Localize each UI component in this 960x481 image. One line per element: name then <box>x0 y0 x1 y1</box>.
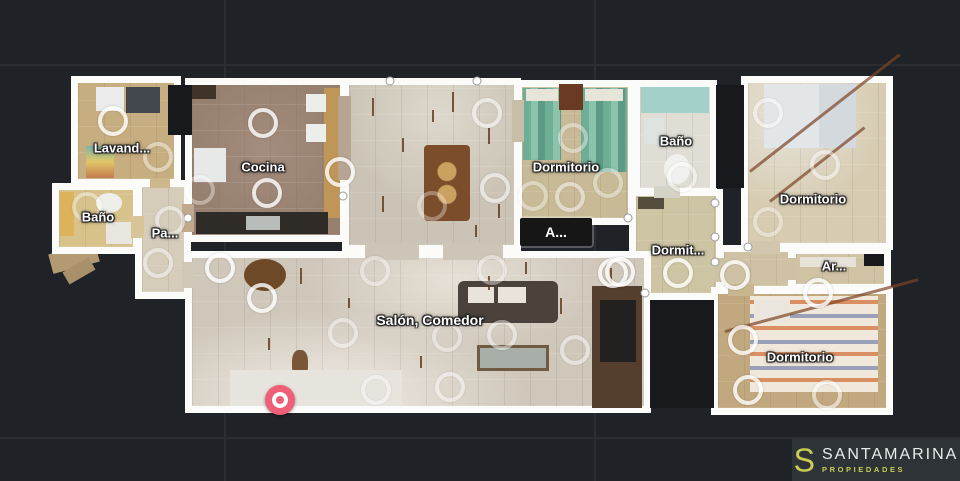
wall-node-dot <box>641 289 650 298</box>
headboard <box>559 84 583 110</box>
kitchen-stool <box>306 124 326 142</box>
scan-artifact-dash <box>348 298 350 308</box>
room-label-bano-izquierda: Baño <box>82 210 115 225</box>
grid-line-vertical <box>594 0 596 481</box>
viewpoint-ring[interactable] <box>667 162 697 192</box>
towel-rack <box>60 192 74 236</box>
brand-tagline: PROPIEDADES <box>822 465 958 474</box>
current-position-marker[interactable] <box>265 385 295 415</box>
room-label-dormitorio-der-inf: Dormitorio <box>767 350 833 365</box>
viewpoint-ring[interactable] <box>487 320 517 350</box>
bath-vanity <box>106 222 132 244</box>
viewpoint-ring[interactable] <box>728 325 758 355</box>
scan-artifact-dash <box>372 98 374 116</box>
room-label-bano-superior: Baño <box>660 134 693 149</box>
brand-logo-icon: S <box>794 444 815 476</box>
pillow <box>468 287 494 303</box>
viewpoint-ring[interactable] <box>143 248 173 278</box>
room-label-acceso-text: A... <box>545 224 567 240</box>
closet-shelf <box>638 197 664 209</box>
scan-artifact-dash <box>300 268 302 284</box>
viewpoint-ring[interactable] <box>435 372 465 402</box>
viewpoint-ring[interactable] <box>663 258 693 288</box>
coffee-table <box>477 345 549 371</box>
kitchen-sink <box>246 216 280 230</box>
kitchen-stool <box>306 94 326 112</box>
brand-panel: S SANTAMARINA PROPIEDADES <box>792 439 960 481</box>
viewpoint-ring[interactable] <box>803 278 833 308</box>
room-label-acceso: A... <box>520 218 592 246</box>
room-label-armario: Ar... <box>822 259 847 274</box>
void-area <box>650 300 714 408</box>
scan-artifact-dash <box>432 110 434 122</box>
viewpoint-ring[interactable] <box>480 173 510 203</box>
wall-node-dot <box>339 192 348 201</box>
viewpoint-ring[interactable] <box>810 150 840 180</box>
wall-node-dot <box>744 243 753 252</box>
viewpoint-ring[interactable] <box>605 257 635 287</box>
viewpoint-ring[interactable] <box>720 260 750 290</box>
scan-artifact-dash <box>268 338 270 350</box>
scan-artifact-dash <box>402 138 404 152</box>
scan-artifact-dash <box>560 298 562 314</box>
pillow <box>498 287 526 303</box>
viewpoint-ring[interactable] <box>205 253 235 283</box>
viewpoint-ring[interactable] <box>560 335 590 365</box>
bath-tiles <box>641 87 709 113</box>
void-area <box>168 85 192 135</box>
viewpoint-ring[interactable] <box>753 98 783 128</box>
scan-artifact-dash <box>452 92 454 112</box>
scan-artifact-dash <box>382 196 384 212</box>
wall-node-dot <box>711 199 720 208</box>
wall-node-dot <box>711 233 720 242</box>
wall-node-dot <box>473 77 482 86</box>
tv-screen <box>600 300 636 362</box>
room-label-pasillo: Pa... <box>152 226 179 241</box>
scan-artifact-dash <box>420 356 422 368</box>
wall-node-dot <box>624 214 633 223</box>
viewpoint-ring[interactable] <box>518 181 548 211</box>
scan-artifact-dash <box>498 204 500 218</box>
viewpoint-ring[interactable] <box>360 256 390 286</box>
viewpoint-ring[interactable] <box>98 106 128 136</box>
wall-node-dot <box>386 77 395 86</box>
void-area <box>716 85 744 188</box>
room-label-cocina: Cocina <box>241 160 284 175</box>
viewpoint-ring[interactable] <box>812 380 842 410</box>
room-label-dormitorio-der-sup: Dormitorio <box>780 192 846 207</box>
door-opening <box>182 262 194 288</box>
kitchen-cabinet <box>192 85 216 99</box>
viewpoint-ring[interactable] <box>733 375 763 405</box>
viewpoint-ring[interactable] <box>477 255 507 285</box>
grid-line-horizontal <box>0 64 960 66</box>
room-label-dormitorio-centro: Dormitorio <box>533 160 599 175</box>
void-area <box>864 254 884 266</box>
grid-line-vertical <box>224 0 226 481</box>
brand-name: SANTAMARINA <box>822 446 958 464</box>
viewpoint-ring[interactable] <box>361 375 391 405</box>
scan-artifact-dash <box>475 225 477 237</box>
scan-artifact-dash <box>488 128 490 144</box>
viewpoint-ring[interactable] <box>252 178 282 208</box>
viewpoint-ring[interactable] <box>555 182 585 212</box>
washing-machine <box>126 87 160 113</box>
viewpoint-ring[interactable] <box>328 318 358 348</box>
viewpoint-ring[interactable] <box>325 157 355 187</box>
door-opening <box>786 258 798 280</box>
current-position-center <box>272 392 288 408</box>
pillow <box>526 89 558 101</box>
scan-artifact-dash <box>525 262 527 274</box>
viewpoint-ring[interactable] <box>248 108 278 138</box>
viewpoint-ring[interactable] <box>185 175 215 205</box>
viewpoint-ring[interactable] <box>472 98 502 128</box>
viewpoint-ring[interactable] <box>247 283 277 313</box>
room-label-lavanderia: Lavand... <box>94 141 150 156</box>
door-opening <box>131 216 144 238</box>
viewpoint-ring[interactable] <box>417 191 447 221</box>
door-opening <box>512 100 524 142</box>
viewpoint-ring[interactable] <box>558 123 588 153</box>
wall-node-dot <box>711 258 720 267</box>
door-opening <box>150 179 170 188</box>
room-label-dormitorio-pequeno: Dormit... <box>652 243 705 258</box>
floorplan-viewer: Lavand... Baño Pa... Cocina Dormitorio B… <box>0 0 960 481</box>
pillow <box>585 89 623 101</box>
room-label-salon-comedor: Salón, Comedor <box>376 312 483 328</box>
viewpoint-ring[interactable] <box>753 207 783 237</box>
door-opening <box>750 241 780 254</box>
